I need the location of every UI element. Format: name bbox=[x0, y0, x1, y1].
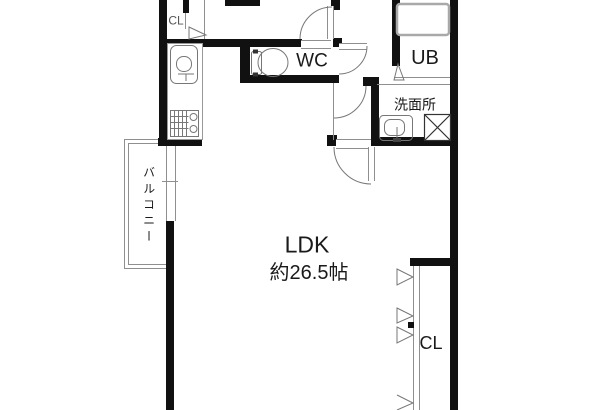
room-label-balcony: バルコニー bbox=[141, 166, 154, 246]
door-swing-arc bbox=[334, 86, 366, 118]
door-swing-arc bbox=[300, 7, 332, 39]
door-swing-arc bbox=[339, 46, 367, 74]
room-label-closet-upper: CL bbox=[168, 14, 183, 27]
stove-icon bbox=[171, 111, 199, 137]
floor-plan: CL WC UB 洗面所 LDK 約26.5帖 バルコニー CL bbox=[0, 0, 600, 410]
room-label-ldk: LDK bbox=[285, 232, 330, 257]
room-label-wc: WC bbox=[296, 52, 328, 73]
room-area-ldk: 約26.5帖 bbox=[270, 262, 349, 284]
kitchen-sink-icon bbox=[171, 46, 198, 84]
closet-door-triangle bbox=[189, 27, 206, 39]
toilet-icon bbox=[252, 49, 289, 77]
room-label-washroom: 洗面所 bbox=[394, 97, 436, 112]
washbasin-icon bbox=[380, 116, 413, 143]
bathtub-icon bbox=[397, 4, 449, 35]
washing-machine-icon bbox=[425, 115, 451, 141]
bath-door-triangle bbox=[394, 64, 404, 80]
room-label-ub: UB bbox=[411, 47, 439, 69]
folding-door-icon bbox=[397, 269, 413, 410]
room-label-closet-lower: CL bbox=[419, 334, 442, 354]
door-swing-arc bbox=[334, 147, 371, 184]
